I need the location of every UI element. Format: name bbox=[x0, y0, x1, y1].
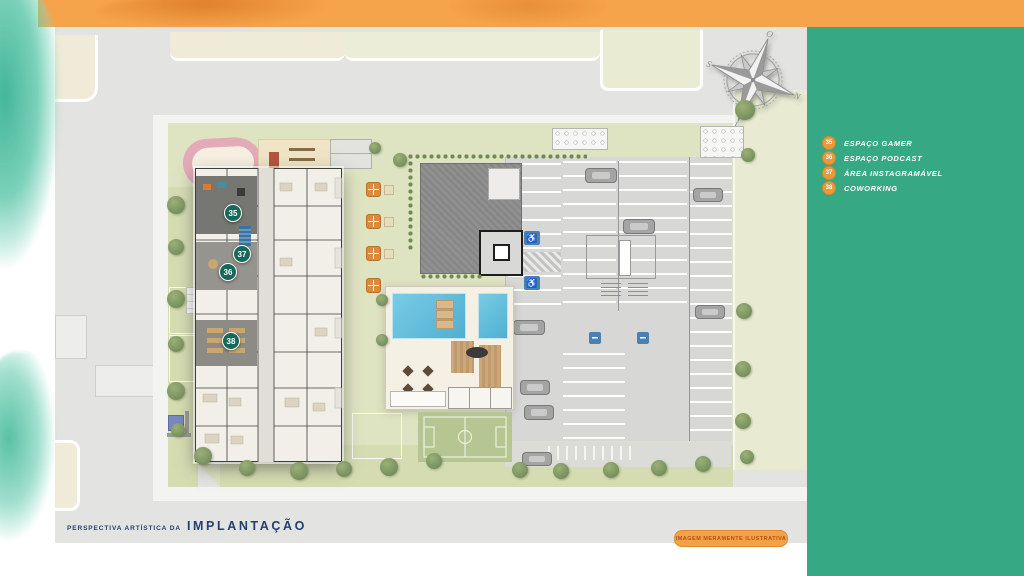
plot-outline bbox=[352, 413, 402, 459]
car bbox=[585, 168, 617, 183]
tree bbox=[393, 153, 407, 167]
legend-item-espaco-gamer: 35 ESPAÇO GAMER bbox=[822, 137, 912, 149]
legend-badge: 38 bbox=[822, 181, 836, 195]
bar-counter bbox=[390, 391, 446, 407]
tree bbox=[167, 290, 185, 308]
tree bbox=[512, 462, 528, 478]
gate-arms bbox=[548, 446, 634, 460]
tree bbox=[336, 461, 352, 477]
roof-ridge bbox=[331, 153, 371, 154]
car-windshield bbox=[527, 384, 544, 391]
car bbox=[693, 188, 723, 202]
tree bbox=[376, 294, 388, 306]
play-equipment bbox=[289, 148, 315, 151]
car-windshield bbox=[700, 192, 717, 198]
tree bbox=[603, 462, 619, 478]
compass-letter-north: N bbox=[792, 90, 803, 102]
watercolor-smudge bbox=[418, 0, 638, 28]
tree bbox=[168, 336, 184, 352]
legend-badge: 35 bbox=[822, 136, 836, 150]
tree bbox=[380, 458, 398, 476]
tree bbox=[239, 460, 255, 476]
compass-letter-west: O bbox=[765, 28, 775, 40]
marker-number: 36 bbox=[224, 268, 233, 277]
parking-stalls bbox=[563, 353, 625, 439]
hedge-row bbox=[420, 273, 482, 280]
stairs bbox=[601, 283, 621, 297]
car bbox=[520, 380, 550, 395]
car bbox=[524, 405, 554, 420]
tree bbox=[651, 460, 667, 476]
car bbox=[623, 219, 655, 234]
amenities-building-roof bbox=[420, 163, 522, 274]
sidewalk bbox=[168, 487, 807, 501]
legend-label: ÁREA INSTAGRAMÁVEL bbox=[844, 169, 943, 178]
compass-rose: O N L S bbox=[703, 28, 803, 132]
legend-label: ESPAÇO GAMER bbox=[844, 139, 912, 148]
bottom-margin bbox=[0, 543, 807, 576]
stairs bbox=[628, 283, 648, 297]
support-building-roof bbox=[330, 139, 372, 169]
tree bbox=[695, 456, 711, 472]
car-windshield bbox=[702, 309, 719, 315]
map-marker-35[interactable]: 35 bbox=[224, 204, 242, 222]
legend-badge: 37 bbox=[822, 166, 836, 180]
table bbox=[384, 249, 394, 259]
neighbor-lot bbox=[170, 32, 345, 61]
legend-badge: 36 bbox=[822, 151, 836, 165]
tree bbox=[741, 148, 755, 162]
map-marker-37[interactable]: 37 bbox=[233, 245, 251, 263]
tree bbox=[369, 142, 381, 154]
caption-prefix: PERSPECTIVA ARTÍSTICA DA bbox=[67, 525, 181, 532]
car-windshield bbox=[630, 223, 648, 230]
elevator bbox=[493, 244, 510, 261]
umbrella bbox=[366, 214, 381, 229]
bike-rack bbox=[552, 128, 608, 150]
tree bbox=[167, 382, 185, 400]
neighbor-lot bbox=[55, 440, 80, 511]
wheelchair-icon: ♿ bbox=[524, 231, 540, 245]
roof-annex bbox=[488, 168, 520, 200]
car bbox=[513, 320, 545, 335]
disclaimer-badge: IMAGEM MERAMENTE ILUSTRATIVA bbox=[674, 530, 788, 547]
tree bbox=[376, 334, 388, 346]
marker-number: 35 bbox=[229, 209, 238, 218]
marker-number: 38 bbox=[227, 337, 236, 346]
bike-rack bbox=[700, 126, 744, 158]
table bbox=[384, 185, 394, 195]
tree bbox=[167, 196, 185, 214]
direction-sign bbox=[637, 332, 649, 344]
wheelchair-icon: ♿ bbox=[524, 276, 540, 290]
bistro-table bbox=[422, 365, 433, 376]
loading-bay bbox=[586, 235, 656, 279]
map-marker-36[interactable]: 36 bbox=[219, 263, 237, 281]
pool-deck bbox=[385, 286, 514, 410]
wall bbox=[490, 388, 491, 408]
tree bbox=[735, 100, 755, 120]
car-windshield bbox=[592, 172, 610, 179]
gate-bar bbox=[185, 411, 189, 433]
legend-label: COWORKING bbox=[844, 184, 898, 193]
umbrella bbox=[366, 182, 381, 197]
spa-tub bbox=[466, 347, 488, 358]
bay-island bbox=[619, 240, 631, 276]
tree bbox=[553, 463, 569, 479]
tree bbox=[735, 361, 751, 377]
wall bbox=[469, 388, 470, 408]
page: 35 37 36 38 bbox=[0, 0, 1024, 576]
neighbor-roof bbox=[55, 315, 87, 359]
swimming-pool bbox=[392, 293, 466, 339]
pool-lounger bbox=[436, 320, 454, 329]
tree bbox=[735, 413, 751, 429]
tree bbox=[171, 423, 185, 437]
car bbox=[522, 452, 552, 466]
top-accent-bar bbox=[38, 0, 1024, 27]
pool-lounger bbox=[436, 300, 454, 309]
caption-title: IMPLANTAÇÃO bbox=[187, 519, 307, 533]
kids-pool bbox=[478, 293, 508, 339]
legend-item-coworking: 38 COWORKING bbox=[822, 182, 898, 194]
parking-stalls bbox=[690, 163, 732, 431]
map-marker-38[interactable]: 38 bbox=[222, 332, 240, 350]
neighbor-lot bbox=[600, 30, 703, 91]
disclaimer-text: IMAGEM MERAMENTE ILUSTRATIVA bbox=[676, 536, 787, 542]
legend-item-area-instagramavel: 37 ÁREA INSTAGRAMÁVEL bbox=[822, 167, 943, 179]
residential-building-plan bbox=[195, 168, 342, 462]
neighbor-lot bbox=[345, 32, 600, 61]
sidewalk bbox=[153, 115, 168, 501]
hedge-row bbox=[407, 153, 587, 160]
tree bbox=[168, 239, 184, 255]
direction-sign bbox=[589, 332, 601, 344]
car-windshield bbox=[520, 324, 538, 331]
compass-letter-south: S bbox=[705, 58, 713, 69]
tree bbox=[740, 450, 754, 464]
play-equipment bbox=[289, 158, 315, 161]
hedge-row bbox=[407, 160, 414, 252]
umbrella bbox=[366, 246, 381, 261]
car bbox=[695, 305, 725, 319]
legend-panel: 35 ESPAÇO GAMER 36 ESPAÇO PODCAST 37 ÁRE… bbox=[807, 27, 1024, 576]
umbrella bbox=[366, 278, 381, 293]
caption: PERSPECTIVA ARTÍSTICA DA IMPLANTAÇÃO bbox=[67, 519, 307, 533]
pool-lounger bbox=[436, 310, 454, 319]
car-windshield bbox=[531, 409, 548, 416]
tree bbox=[290, 462, 308, 480]
tree bbox=[194, 447, 212, 465]
restrooms bbox=[448, 387, 512, 409]
table bbox=[384, 217, 394, 227]
car-windshield bbox=[529, 456, 546, 462]
tree bbox=[426, 453, 442, 469]
legend-item-espaco-podcast: 36 ESPAÇO PODCAST bbox=[822, 152, 922, 164]
legend-label: ESPAÇO PODCAST bbox=[844, 154, 922, 163]
neighbor-lot bbox=[55, 35, 98, 102]
tree bbox=[736, 303, 752, 319]
neighbor-roof bbox=[95, 365, 155, 397]
bistro-table bbox=[402, 365, 413, 376]
stair-core bbox=[479, 230, 523, 276]
marker-number: 37 bbox=[238, 250, 247, 259]
site-plan-map: 35 37 36 38 bbox=[55, 27, 807, 543]
